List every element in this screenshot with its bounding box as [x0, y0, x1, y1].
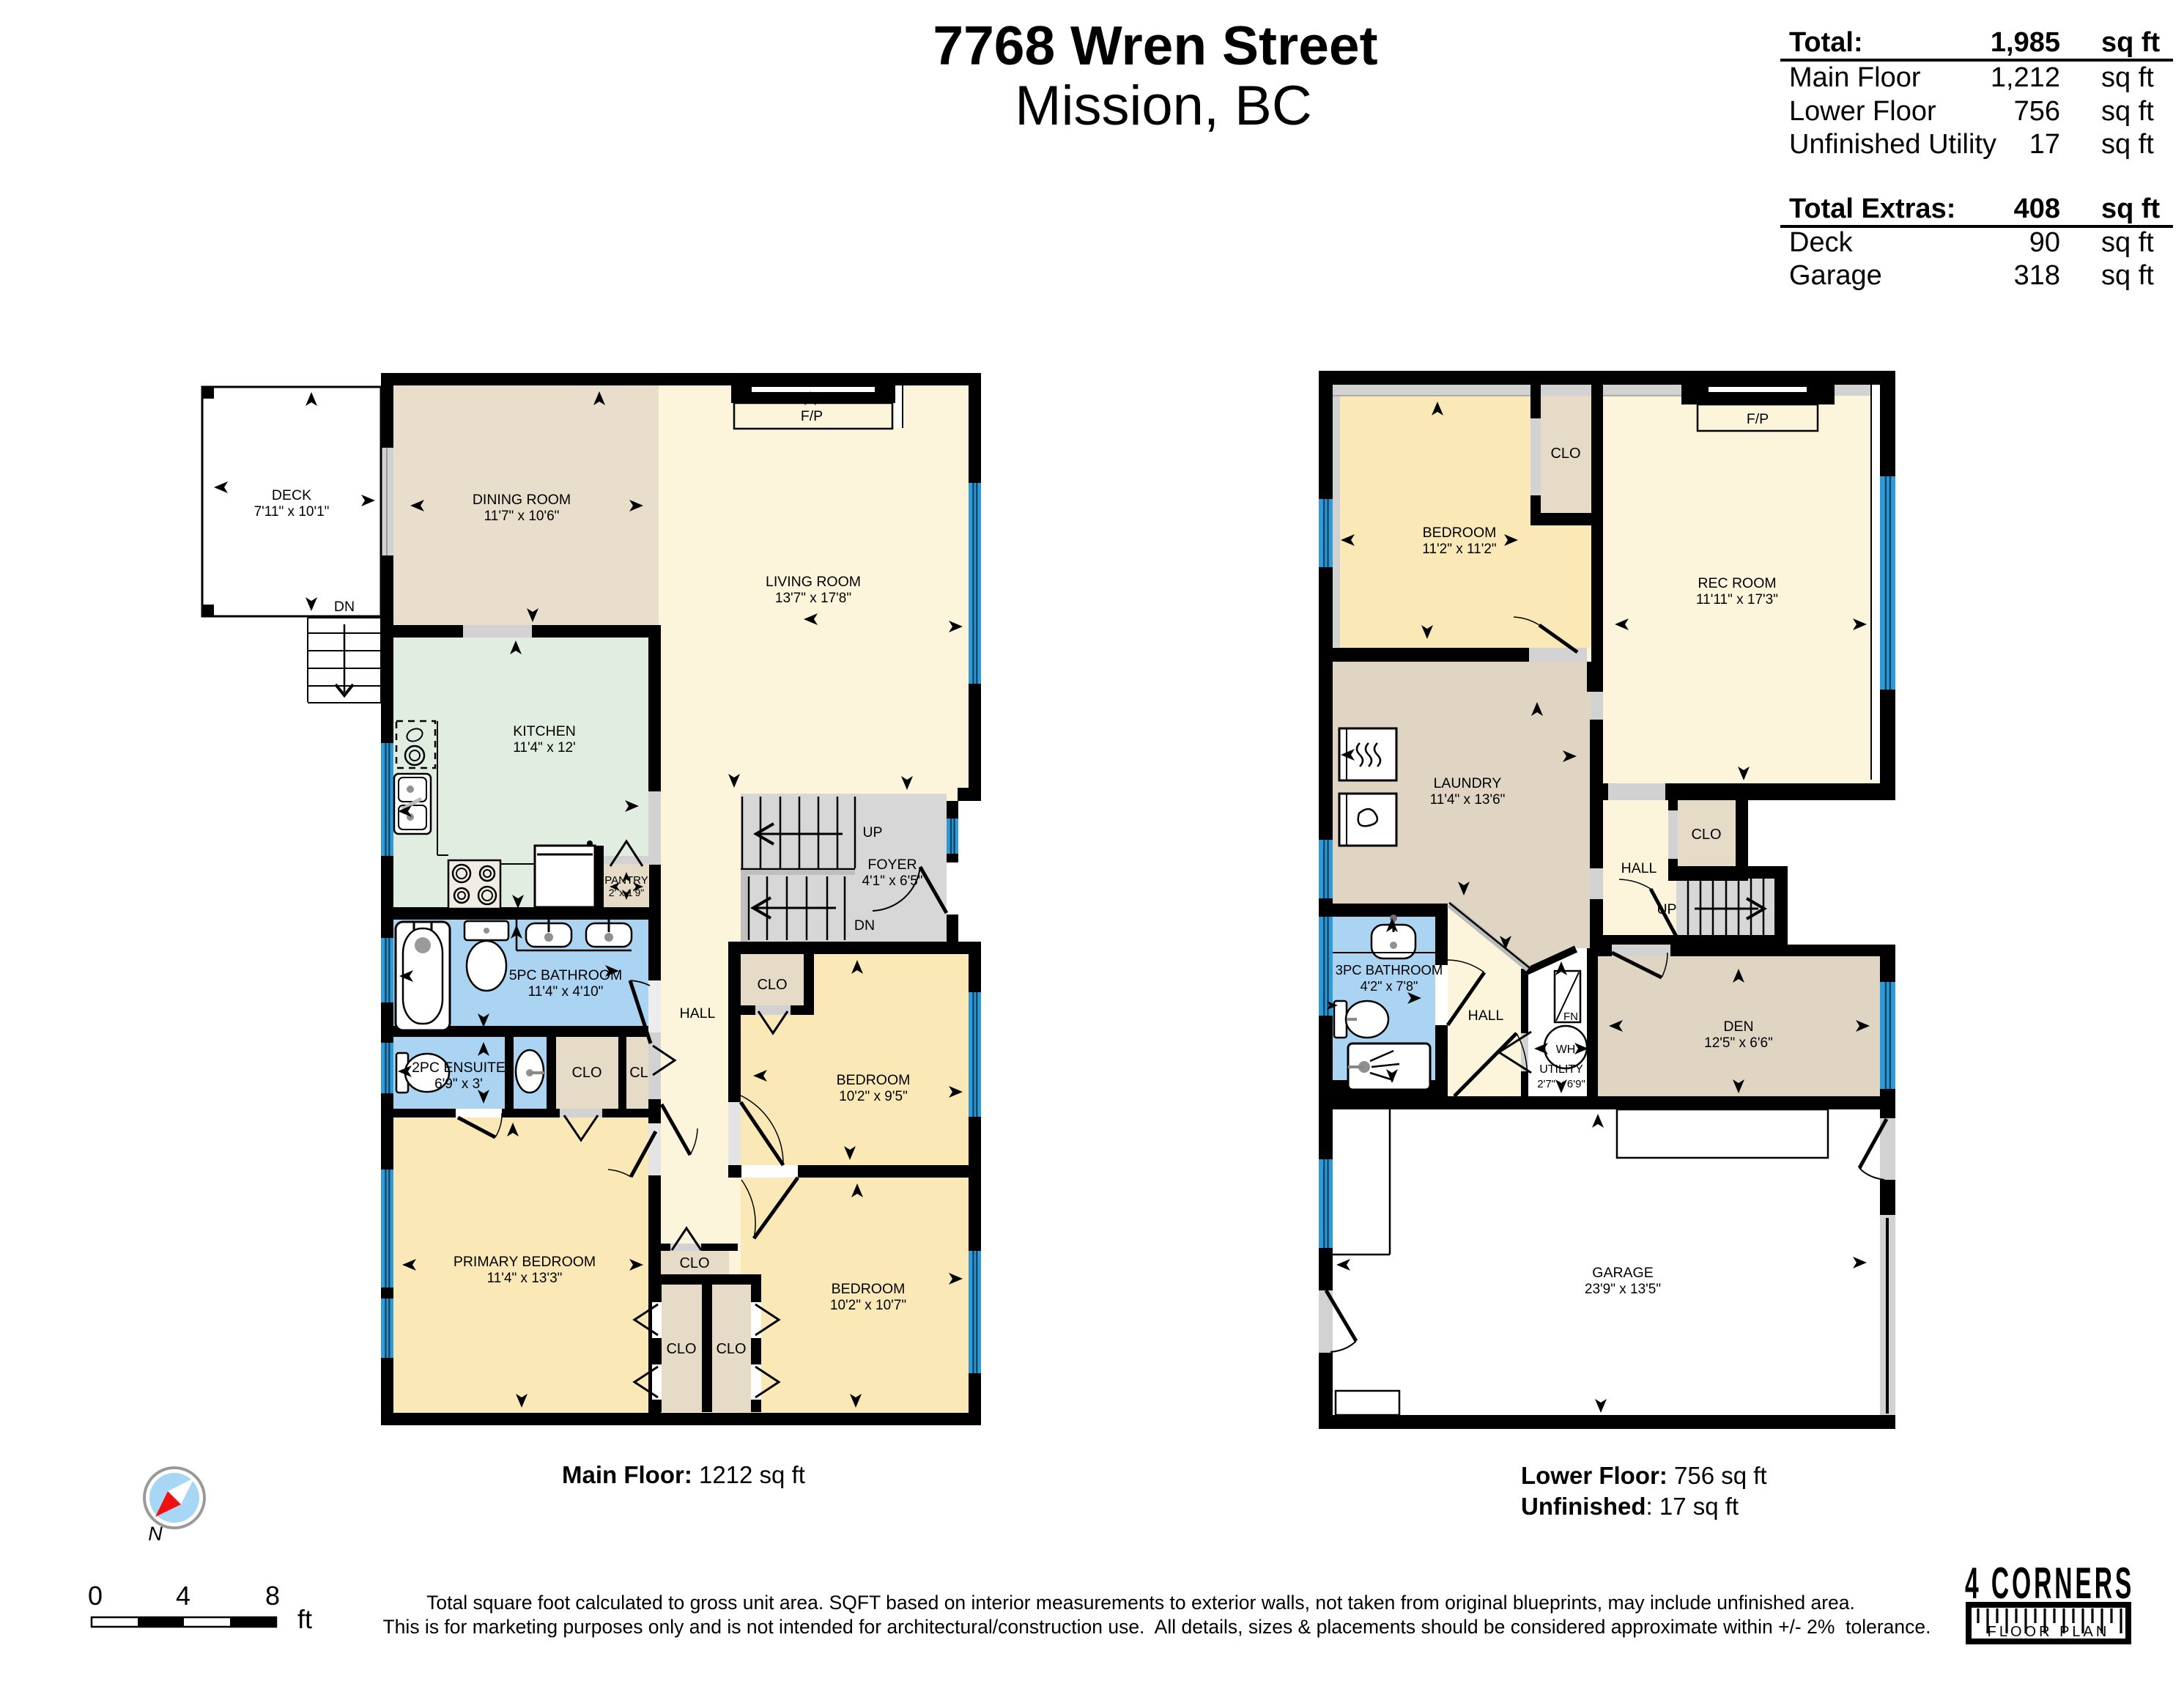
- svg-text:F/P: F/P: [1747, 411, 1769, 427]
- svg-text:4: 4: [176, 1581, 190, 1611]
- svg-text:HALL: HALL: [1468, 1008, 1504, 1024]
- svg-text:Total square foot calculated t: Total square foot calculated to gross un…: [426, 1592, 1855, 1614]
- svg-text:CL: CL: [629, 1065, 648, 1081]
- svg-text:Total Extras:: Total Extras:: [1789, 193, 1955, 224]
- svg-text:HALL: HALL: [1621, 860, 1657, 876]
- svg-text:DECK: DECK: [272, 487, 311, 503]
- svg-text:LAUNDRY: LAUNDRY: [1434, 775, 1502, 791]
- svg-text:DINING ROOM: DINING ROOM: [473, 492, 571, 508]
- svg-text:11'4" x 13'6": 11'4" x 13'6": [1430, 792, 1506, 808]
- svg-text:12'5" x 6'6": 12'5" x 6'6": [1704, 1035, 1773, 1051]
- svg-text:LIVING ROOM: LIVING ROOM: [766, 574, 861, 590]
- svg-text:FN: FN: [1563, 1011, 1578, 1023]
- svg-text:11'4" x 12': 11'4" x 12': [513, 740, 575, 756]
- svg-text:Garage: Garage: [1789, 260, 1882, 291]
- svg-text:7'11" x 10'1": 7'11" x 10'1": [254, 504, 330, 520]
- svg-text:Main Floor: 1212 sq ft: Main Floor: 1212 sq ft: [562, 1461, 805, 1488]
- svg-text:Main Floor: Main Floor: [1789, 62, 1921, 93]
- svg-text:sq ft: sq ft: [2101, 193, 2161, 224]
- svg-text:1,212: 1,212: [1991, 62, 2060, 93]
- svg-text:7768 Wren Street: 7768 Wren Street: [933, 15, 1377, 76]
- svg-text:CLO: CLO: [679, 1255, 709, 1271]
- svg-text:2PC ENSUITE: 2PC ENSUITE: [412, 1060, 506, 1076]
- svg-text:3PC BATHROOM: 3PC BATHROOM: [1336, 962, 1443, 978]
- svg-text:17: 17: [2029, 129, 2060, 160]
- svg-text:sq ft: sq ft: [2101, 96, 2154, 127]
- svg-text:ft: ft: [297, 1604, 312, 1634]
- svg-text:23'9" x 13'5": 23'9" x 13'5": [1585, 1282, 1661, 1297]
- svg-text:REC ROOM: REC ROOM: [1698, 575, 1776, 591]
- svg-text:BEDROOM: BEDROOM: [837, 1072, 911, 1088]
- svg-text:10'2" x 9'5": 10'2" x 9'5": [839, 1089, 908, 1104]
- svg-text:GARAGE: GARAGE: [1592, 1265, 1653, 1281]
- svg-text:BEDROOM: BEDROOM: [832, 1281, 906, 1297]
- svg-text:CLO: CLO: [757, 977, 787, 993]
- svg-text:BEDROOM: BEDROOM: [1423, 525, 1497, 541]
- svg-text:0: 0: [88, 1581, 103, 1611]
- svg-text:DN: DN: [854, 917, 875, 934]
- svg-text:sq ft: sq ft: [2101, 129, 2154, 160]
- svg-text:sq ft: sq ft: [2101, 62, 2154, 93]
- svg-text:318: 318: [2014, 260, 2060, 291]
- svg-text:PRIMARY BEDROOM: PRIMARY BEDROOM: [454, 1254, 596, 1270]
- svg-text:DN: DN: [334, 599, 355, 615]
- svg-text:DEN: DEN: [1723, 1019, 1753, 1035]
- svg-text:UP: UP: [862, 824, 882, 841]
- svg-text:Unfinished: 17 sq ft: Unfinished: 17 sq ft: [1521, 1493, 1739, 1520]
- svg-text:sq ft: sq ft: [2101, 227, 2154, 258]
- svg-text:CLO: CLO: [1691, 827, 1721, 843]
- svg-text:Lower Floor: Lower Floor: [1789, 96, 1936, 127]
- svg-text:Lower Floor: 756 sq ft: Lower Floor: 756 sq ft: [1521, 1462, 1767, 1489]
- svg-text:11'2" x 11'2": 11'2" x 11'2": [1422, 542, 1496, 557]
- svg-text:11'11" x 17'3": 11'11" x 17'3": [1696, 592, 1778, 607]
- svg-text:Unfinished Utility: Unfinished Utility: [1789, 129, 1996, 160]
- svg-text:4 CORNERS: 4 CORNERS: [1965, 1559, 2134, 1608]
- svg-text:10'2" x 10'7": 10'2" x 10'7": [830, 1298, 906, 1313]
- svg-text:WH: WH: [1556, 1043, 1576, 1056]
- svg-text:This is for marketing purposes: This is for marketing purposes only and …: [383, 1616, 1931, 1638]
- svg-text:6'9" x 3': 6'9" x 3': [434, 1076, 483, 1092]
- svg-text:F/P: F/P: [801, 408, 823, 424]
- svg-text:11'7" x 10'6": 11'7" x 10'6": [484, 509, 560, 524]
- svg-text:N: N: [148, 1523, 163, 1545]
- svg-text:756: 756: [2014, 96, 2060, 127]
- svg-text:11'4" x 4'10": 11'4" x 4'10": [528, 984, 604, 1000]
- svg-text:FLOOR PLAN: FLOOR PLAN: [1988, 1624, 2110, 1640]
- svg-text:KITCHEN: KITCHEN: [513, 723, 576, 739]
- svg-text:UTILITY: UTILITY: [1539, 1063, 1583, 1076]
- svg-text:sq ft: sq ft: [2101, 260, 2154, 291]
- svg-text:CLO: CLO: [571, 1065, 601, 1081]
- svg-text:1,985: 1,985: [1991, 27, 2060, 58]
- svg-text:13'7" x 17'8": 13'7" x 17'8": [775, 591, 851, 606]
- svg-text:sq ft: sq ft: [2101, 27, 2161, 58]
- svg-text:CLO: CLO: [716, 1341, 746, 1357]
- svg-text:FOYER: FOYER: [867, 857, 917, 873]
- svg-text:11'4" x 13'3": 11'4" x 13'3": [487, 1271, 563, 1286]
- svg-text:408: 408: [2014, 193, 2060, 224]
- svg-text:5PC BATHROOM: 5PC BATHROOM: [509, 967, 623, 983]
- svg-text:Deck: Deck: [1789, 227, 1854, 258]
- svg-text:CLO: CLO: [666, 1341, 696, 1357]
- svg-text:8: 8: [265, 1581, 280, 1611]
- svg-text:HALL: HALL: [680, 1005, 716, 1022]
- svg-text:4'2" x 7'8": 4'2" x 7'8": [1361, 979, 1418, 994]
- svg-text:Mission, BC: Mission, BC: [1015, 75, 1311, 137]
- svg-text:CLO: CLO: [1550, 446, 1580, 462]
- svg-text:Total:: Total:: [1789, 27, 1863, 58]
- svg-text:90: 90: [2029, 227, 2060, 258]
